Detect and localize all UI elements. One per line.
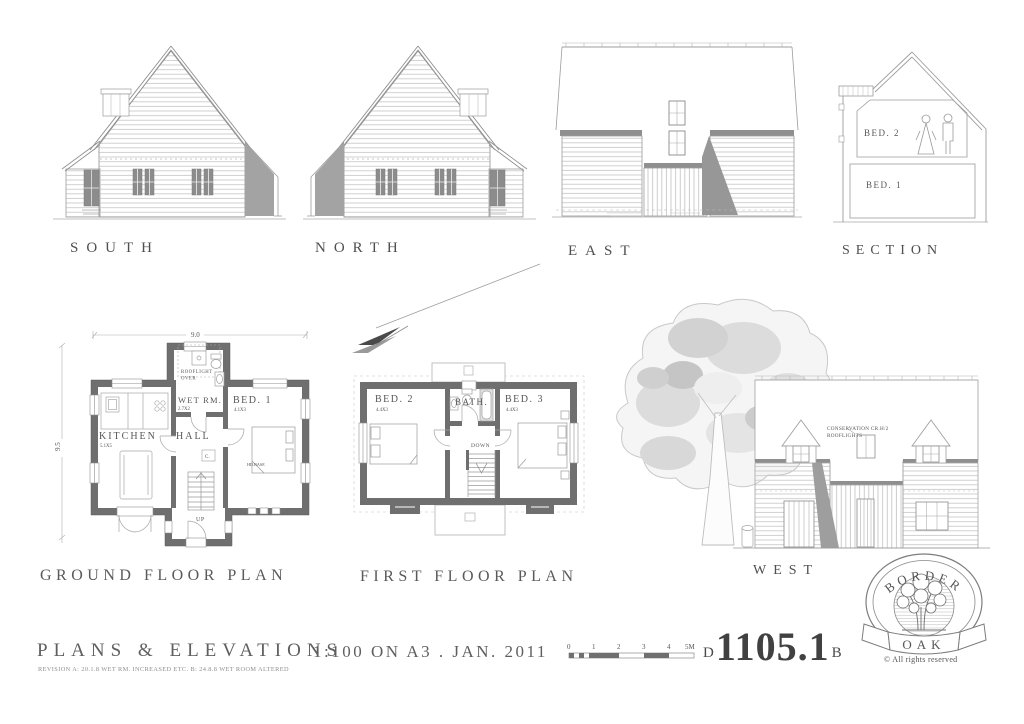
west-elevation-drawing: CONSERVATION CR.H/2 ROOFLIGHTS <box>598 283 1010 568</box>
section-bed2-label: BED. 2 <box>864 128 900 138</box>
north-elevation-drawing <box>303 38 538 238</box>
ground-floor-plan-label: GROUND FLOOR PLAN <box>40 567 287 585</box>
ff-bath-label: BATH. <box>455 397 488 407</box>
first-floor-plan-label: FIRST FLOOR PLAN <box>360 568 578 586</box>
copyright-note: © All rights reserved <box>884 655 957 664</box>
gf-kitchen-label: KITCHEN <box>99 431 157 442</box>
section-figures <box>916 114 953 154</box>
gf-hall-label: HALL <box>176 431 211 442</box>
drawing-sheet: SOUTH NORTH EAST <box>0 0 1024 724</box>
gf-wetroom-label: WET RM. <box>178 395 222 405</box>
west-house: CONSERVATION CR.H/2 ROOFLIGHTS <box>733 376 990 548</box>
gf-cupboard-label: C. <box>205 455 210 460</box>
scale-tick-0: 0 <box>567 643 571 651</box>
section-bed1-label: BED. 1 <box>866 180 902 190</box>
north-elevation-label: NORTH <box>315 240 406 257</box>
gf-wetroom-dim: 2.7X2 <box>178 407 190 412</box>
east-rooflight-windows <box>669 101 685 155</box>
ground-floor-plan-drawing: 9.0 9.5 <box>48 323 318 575</box>
gf-rooflight-label-1: ROOFLIGHT <box>181 370 213 375</box>
north-arrow <box>352 326 408 353</box>
gf-dim-width: 9.0 <box>191 331 200 339</box>
gf-kitchen-dim: 5.1X5 <box>100 444 112 449</box>
ff-bed2-dim: 4.4X3 <box>376 408 388 413</box>
east-elevation-drawing <box>552 33 804 233</box>
ff-bed3-label: BED. 3 <box>505 394 544 405</box>
gf-bed1-dim: 4.1X3 <box>234 408 246 413</box>
west-note-line2: ROOFLIGHTS <box>827 433 862 439</box>
sheet-title: PLANS & ELEVATIONS <box>37 640 343 662</box>
scale-tick-3: 3 <box>642 643 646 651</box>
gf-up-label: UP <box>196 517 205 523</box>
logo-oak-text: OAK <box>902 637 945 652</box>
scale-tick-4: 4 <box>667 643 671 651</box>
scale-tick-5: 5M <box>685 643 696 651</box>
drawing-number-block: D 1105.1 B <box>703 630 842 664</box>
south-elevation-drawing <box>53 38 288 238</box>
east-elevation-label: EAST <box>568 243 638 260</box>
scale-bar: 0 1 2 3 4 5M <box>563 640 703 670</box>
gf-bed1-label: BED. 1 <box>233 395 272 406</box>
west-elevation-label: WEST <box>753 563 819 579</box>
ff-down-label: DOWN <box>471 443 490 449</box>
ff-bed3-dim: 4.4X3 <box>506 408 518 413</box>
west-note-line1: CONSERVATION CR.H/2 <box>827 426 889 432</box>
gf-stairs <box>188 472 214 510</box>
first-floor-plan-drawing: BED. 2 4.4X3 BATH. BED. 3 4.4X3 DOWN <box>350 323 595 575</box>
drawing-prefix: D <box>703 646 714 664</box>
gf-rooflight-label-2: OVER <box>181 377 196 382</box>
gf-bed-note: HD.BASE <box>247 462 265 467</box>
section-drawing: BED. 2 BED. 1 <box>828 36 993 236</box>
south-elevation-label: SOUTH <box>70 240 160 257</box>
ff-bed2-label: BED. 2 <box>375 394 414 405</box>
revision-note: REVISION A: 20.1.8 WET RM. INCREASED ETC… <box>38 666 289 673</box>
scale-tick-1: 1 <box>592 643 596 651</box>
border-oak-logo: BORDER OAK <box>858 552 990 660</box>
scale-and-date: 1:100 ON A3 . JAN. 2011 <box>313 642 548 662</box>
scale-tick-2: 2 <box>617 643 621 651</box>
section-label: SECTION <box>842 243 943 259</box>
gf-dim-height: 9.5 <box>54 442 62 451</box>
drawing-number: 1105.1 <box>716 630 830 664</box>
drawing-revision: B <box>832 646 842 664</box>
